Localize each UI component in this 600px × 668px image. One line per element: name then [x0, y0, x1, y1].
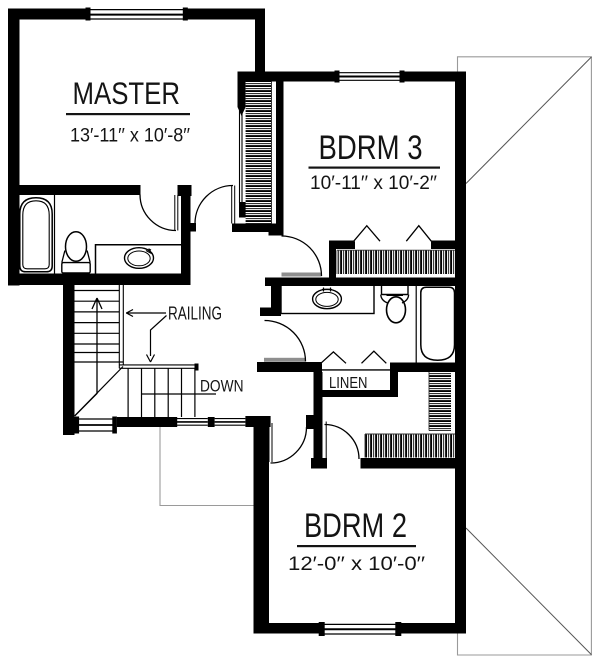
svg-text:13′-11′′ x 10′-8′′: 13′-11′′ x 10′-8′′	[70, 126, 190, 147]
svg-text:10′-11′′ x 10′-2′′: 10′-11′′ x 10′-2′′	[310, 173, 437, 194]
svg-text:BDRM 2: BDRM 2	[304, 507, 407, 545]
svg-text:BDRM 3: BDRM 3	[319, 129, 423, 167]
svg-text:MASTER: MASTER	[73, 75, 181, 111]
svg-text:RAILING: RAILING	[168, 304, 222, 324]
svg-text:12′-0′′ x 10′-0′′: 12′-0′′ x 10′-0′′	[288, 553, 425, 575]
svg-text:LINEN: LINEN	[329, 375, 368, 392]
svg-text:DOWN: DOWN	[200, 376, 244, 395]
